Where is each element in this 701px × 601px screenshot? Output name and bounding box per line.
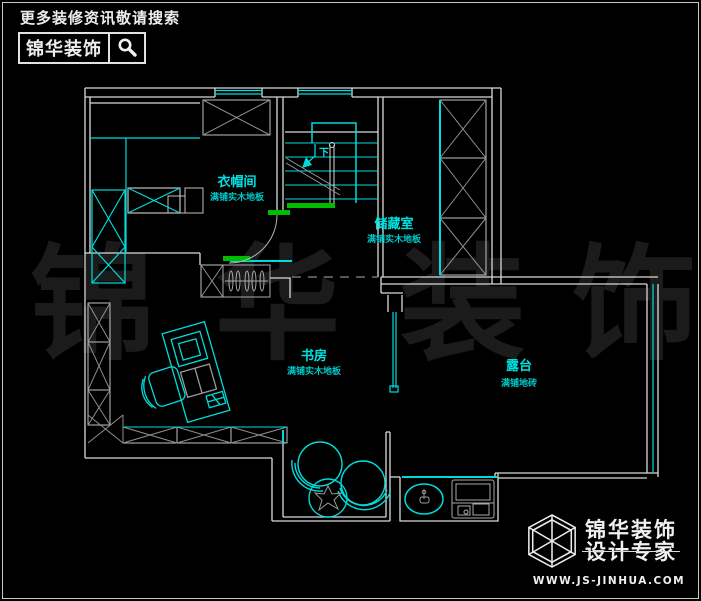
svg-text:满铺实木地板: 满铺实木地板 (367, 233, 422, 245)
header-brand-block: 更多装修资讯敬请搜索 锦华装饰 (18, 7, 180, 64)
svg-text:装: 装 (400, 232, 525, 378)
room-label-cloakroom: 衣帽间 (217, 174, 256, 190)
header-tagline: 更多装修资讯敬请搜索 (20, 7, 180, 28)
svg-text:饰: 饰 (572, 232, 697, 378)
floor-plan: 锦 华 装 饰 (0, 0, 701, 601)
cad-floorplan-screenshot: 更多装修资讯敬请搜索 锦华装饰 锦 华 装 饰 (0, 0, 701, 601)
footer-brand-line2: 设计专家 (585, 540, 677, 564)
cube-wireframe-icon (525, 512, 579, 570)
window-lines (215, 91, 352, 95)
footer-brand-line1: 锦华装饰 (585, 519, 677, 541)
lounge-chairs (292, 442, 390, 517)
brand-name: 锦华装饰 (20, 34, 108, 62)
appliance-unit (452, 480, 494, 518)
plant-icon (315, 486, 341, 510)
room-label-terrace: 露台 (506, 358, 532, 374)
room-label-storage: 储藏室 (373, 216, 413, 232)
brand-search-box: 锦华装饰 (18, 32, 146, 64)
watermark-text: 锦 华 装 饰 (30, 232, 697, 378)
svg-text:满铺地砖: 满铺地砖 (501, 377, 537, 389)
room-label-study: 书房 (301, 348, 327, 364)
stair-down-label: 下 (319, 147, 329, 159)
staircase (285, 123, 378, 207)
svg-text:满铺实木地板: 满铺实木地板 (287, 365, 342, 377)
svg-text:满铺实木地板: 满铺实木地板 (210, 191, 265, 203)
wash-basin (405, 484, 443, 514)
footer-logo-block: 锦华装饰 设计专家 WWW.JS-JINHUA.COM (525, 512, 693, 587)
search-icon (108, 34, 144, 62)
footer-website: WWW.JS-JINHUA.COM (525, 575, 693, 587)
